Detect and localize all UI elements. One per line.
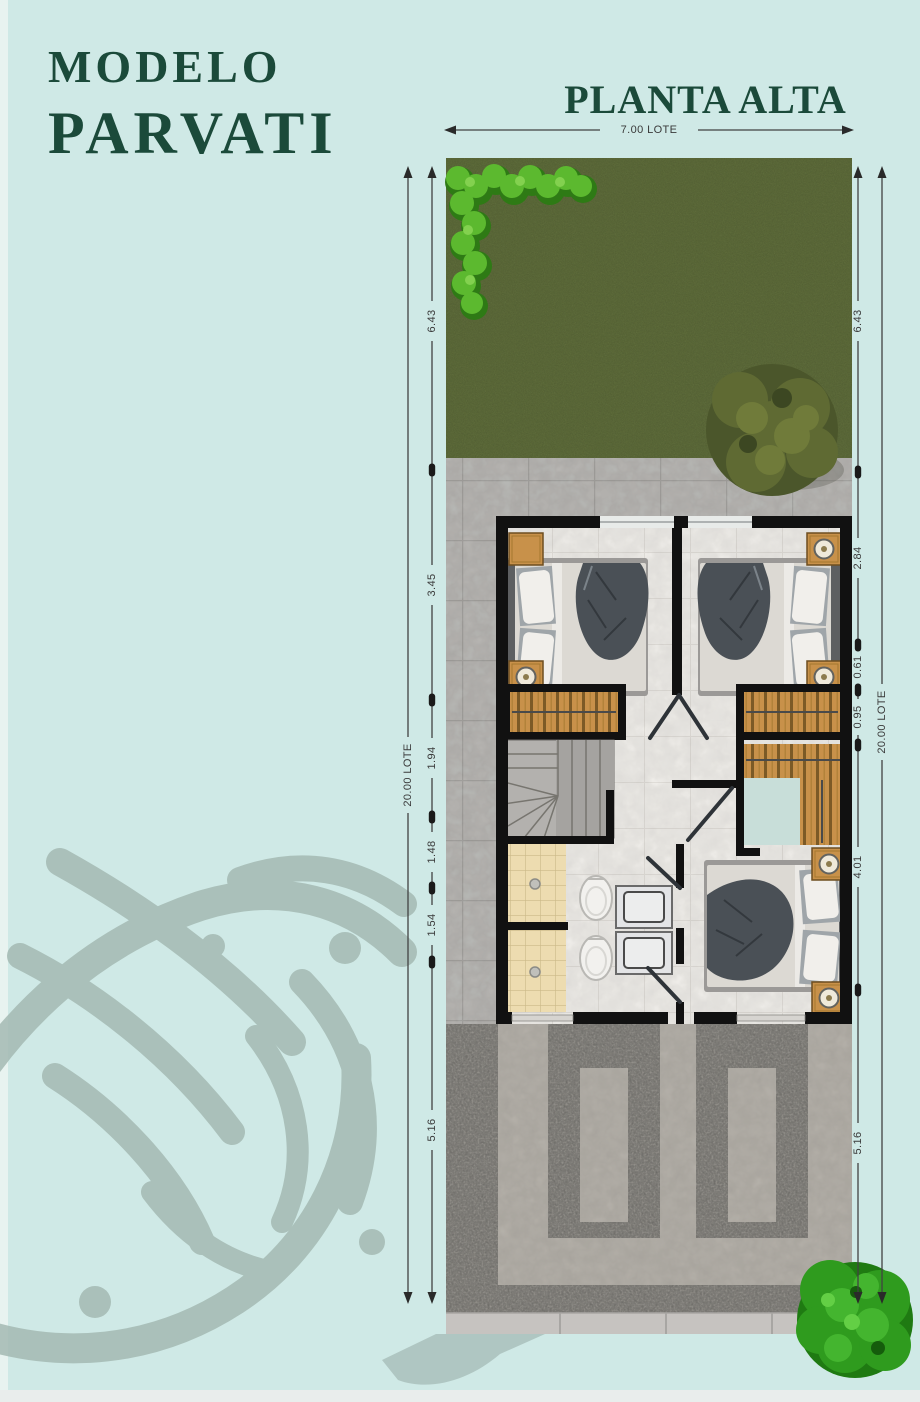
dim-left-segment-6: 5.16 (426, 1118, 438, 1141)
dim-right-segment-1: 6.43 (852, 309, 864, 332)
toilet-2 (580, 936, 612, 980)
vanity-2 (616, 932, 672, 974)
sidewalk (446, 1313, 852, 1334)
dim-lot-width-label: 7.00 LOTE (621, 124, 678, 136)
dim-right-segment-4: 0.95 (852, 705, 864, 728)
floor-plan-graphic (0, 0, 920, 1402)
driveway (446, 1024, 852, 1313)
shower-2 (504, 930, 566, 1012)
vanity-1 (616, 886, 672, 928)
toilet-1 (580, 876, 612, 920)
dim-right-segment-3: 0.61 (852, 655, 864, 678)
dim-right-segment-5: 4.01 (852, 855, 864, 878)
dim-right-segment-2: 2.84 (852, 546, 864, 569)
page: MODELO PARVATI PLANTA ALTA 7.00 LOTE 20.… (0, 0, 920, 1402)
page-bottom-strip (0, 1390, 920, 1402)
floor-title: PLANTA ALTA (548, 76, 863, 123)
closet-1 (504, 684, 626, 740)
dim-left-segment-2: 3.45 (426, 573, 438, 596)
street-tree-icon (796, 1260, 913, 1378)
lotus-watermark-icon (0, 862, 404, 1348)
dim-right-segment-6: 5.16 (852, 1131, 864, 1154)
title-block: MODELO PARVATI (48, 40, 338, 168)
model-name: PARVATI (48, 99, 338, 168)
dim-left-segment-4: 1.48 (426, 840, 438, 863)
dim-lot-depth-right-label: 20.00 LOTE (876, 690, 888, 753)
winder-stairs-icon (504, 740, 614, 838)
closet-l-shaped (736, 740, 844, 856)
plan-shadow (382, 1334, 545, 1385)
closet-2 (736, 684, 848, 740)
dim-left-segment-3: 1.94 (426, 746, 438, 769)
dim-left-segment-1: 6.43 (426, 309, 438, 332)
dim-left-segment-5: 1.54 (426, 913, 438, 936)
page-left-edge (0, 0, 8, 1402)
shower-1 (504, 844, 566, 922)
model-label: MODELO (48, 40, 338, 93)
dim-lot-depth-left-label: 20.00 LOTE (402, 743, 414, 806)
